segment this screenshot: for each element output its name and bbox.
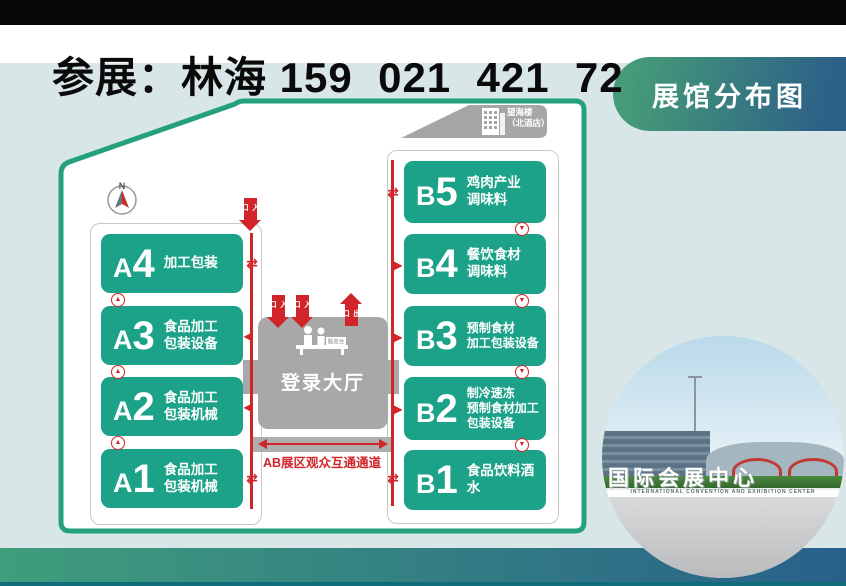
down-arrow-icon: ▼: [515, 222, 529, 236]
left-arrow-icon: ◀: [234, 400, 262, 414]
exchange-arrow-icon: ⇄: [379, 185, 407, 199]
exchange-arrow-icon: ⇄: [238, 471, 266, 485]
entrance-arrow-icon: 入口: [272, 295, 285, 317]
down-arrow-icon: ▼: [515, 365, 529, 379]
left-arrow-icon: ◀: [234, 329, 262, 343]
photo-sign-chinese: 国际会展中心: [608, 462, 844, 492]
map-title-badge: 展馆分布图: [613, 57, 846, 131]
photo-road: [602, 497, 844, 578]
up-arrow-icon: ▲: [111, 293, 125, 307]
right-arrow-icon: ▶: [384, 402, 412, 416]
contact-title: 参展：林海 159 021 421 72: [52, 44, 624, 105]
down-arrow-icon: ▼: [515, 294, 529, 308]
corridor-double-arrow-icon: [262, 443, 384, 445]
exit-arrow-icon: 出口: [345, 304, 358, 326]
right-arrow-icon: ▶: [384, 258, 412, 272]
map-title-badge-label: 展馆分布图: [652, 75, 807, 114]
service-desk-label: 服务台: [328, 338, 345, 346]
corridor-label: AB展区观众互通通道: [250, 452, 394, 471]
entrance-arrow-icon: 入口: [296, 295, 309, 317]
venue-photo: INTERNATIONAL CONVENTION AND EXHIBITION …: [602, 336, 844, 578]
right-arrow-icon: ▶: [384, 330, 412, 344]
up-arrow-icon: ▲: [111, 365, 125, 379]
down-arrow-icon: ▼: [515, 438, 529, 452]
entrance-arrow-icon: 入口: [244, 198, 257, 220]
exhibition-map-page: 参展：林海 159 021 421 72 展馆分布图 N 望海楼 （北酒店）: [0, 0, 846, 586]
exchange-arrow-icon: ⇄: [238, 256, 266, 270]
up-arrow-icon: ▲: [111, 436, 125, 450]
exchange-arrow-icon: ⇄: [379, 471, 407, 485]
bottom-teal-strip: [0, 582, 846, 586]
